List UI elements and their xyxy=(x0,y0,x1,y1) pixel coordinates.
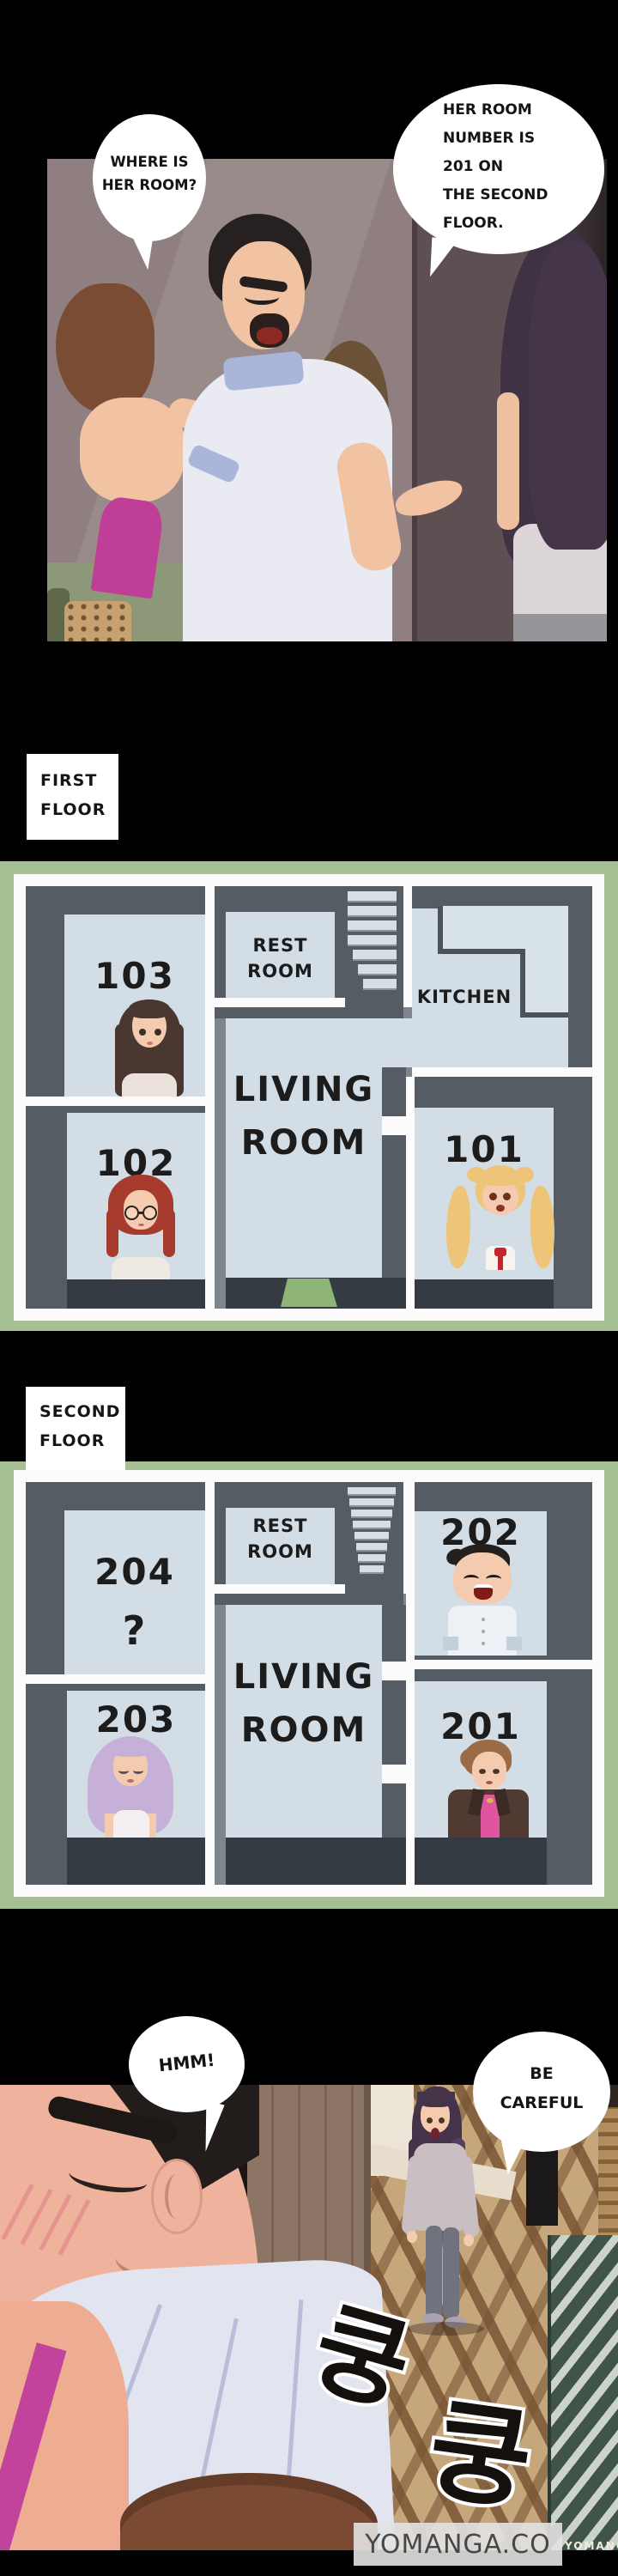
closed-happy-eye xyxy=(463,1575,479,1583)
room-203-floor xyxy=(67,1838,205,1885)
resident-103-portrait xyxy=(110,994,189,1097)
stair-tread xyxy=(348,1487,396,1496)
wall-gap xyxy=(412,1067,592,1077)
living-1f-label-line2: ROOM xyxy=(226,1123,382,1163)
eye xyxy=(503,1193,511,1200)
bangs xyxy=(417,2092,455,2107)
resident-101-portrait xyxy=(446,1163,554,1279)
bubble-line: WHERE IS xyxy=(110,154,188,170)
rest-room-1f-label: REST ROOM xyxy=(226,933,335,984)
wall-gap xyxy=(205,1482,215,1885)
mouth xyxy=(147,1042,153,1045)
closed-eye xyxy=(118,1767,129,1774)
room-number-204: 204 xyxy=(64,1551,205,1593)
bubble-line: FLOOR. xyxy=(443,215,504,232)
watermark-side-text: YOMANGA xyxy=(565,2540,618,2552)
resident-203-portrait xyxy=(81,1735,180,1838)
red-bow xyxy=(494,1248,506,1256)
door-notch xyxy=(382,1662,406,1680)
speech-bubble-careful-text: BE CAREFUL xyxy=(482,2059,602,2117)
eye xyxy=(154,1029,161,1036)
wall-gap xyxy=(215,998,345,1007)
room-number-103: 103 xyxy=(64,955,205,997)
mouth-open xyxy=(496,1205,505,1212)
closed-eye xyxy=(133,1767,143,1774)
wall-gap xyxy=(26,1674,205,1684)
resident-202-portrait xyxy=(439,1544,525,1656)
room-label-line: ROOM xyxy=(247,1541,313,1562)
speech-bubble-where-text: WHERE IS HER ROOM? xyxy=(101,150,197,197)
living-2f-label-line2: ROOM xyxy=(226,1710,382,1750)
stair-tread xyxy=(353,1521,391,1529)
camisole xyxy=(113,1810,149,1838)
living-2f-right-wall xyxy=(382,1605,406,1838)
stair-tread xyxy=(348,891,397,902)
hair-side xyxy=(106,1209,118,1257)
manga-page: WHERE IS HER ROOM? HER ROOM NUMBER IS 20… xyxy=(0,0,618,2576)
living-2f-floor xyxy=(226,1838,406,1885)
living-2f-left-wall xyxy=(215,1594,403,1605)
stair-tread xyxy=(348,920,397,932)
stair-tread xyxy=(360,1565,384,1574)
bubble-line: HER ROOM? xyxy=(102,177,197,193)
bubble-line: 201 ON xyxy=(443,158,503,175)
kitchen-counter-top xyxy=(438,906,568,954)
bangs xyxy=(129,999,170,1018)
room-201-floor xyxy=(415,1838,547,1885)
right-girl-hair-front xyxy=(528,240,607,550)
eye xyxy=(427,2117,433,2123)
room-204-question-mark: ? xyxy=(64,1607,205,1654)
eye xyxy=(489,1193,497,1200)
room-label-line: REST xyxy=(253,1516,308,1536)
stair-tread xyxy=(348,935,397,946)
first-floor-label-box: FIRST FLOOR xyxy=(27,754,118,840)
shirt xyxy=(112,1257,170,1279)
pants-leg xyxy=(426,2226,442,2318)
living-1f-right-wall xyxy=(382,1067,406,1278)
stair-tread xyxy=(348,906,397,917)
stair-tread xyxy=(351,1510,392,1518)
glasses-bridge xyxy=(138,1212,143,1214)
room-label-line: REST xyxy=(253,935,308,956)
glasses-left-lens xyxy=(124,1206,139,1220)
mouth-open xyxy=(474,1584,493,1600)
mouth xyxy=(127,1779,134,1783)
living-1f-left-wall xyxy=(215,1007,403,1018)
pants-leg xyxy=(443,2227,459,2318)
bangs xyxy=(479,1170,522,1186)
door-notch xyxy=(382,1765,406,1783)
wall-gap xyxy=(205,886,215,1309)
living-1f-label-line1: LIVING xyxy=(226,1070,382,1109)
bubble-line: CAREFUL xyxy=(500,2093,584,2112)
doorframe-line xyxy=(412,159,417,641)
couch-cushion-leopard xyxy=(64,601,131,641)
red-ribbon xyxy=(498,1256,503,1270)
living-2f-label-line1: LIVING xyxy=(226,1657,382,1697)
right-girl-arm xyxy=(497,392,519,530)
doormat xyxy=(281,1279,337,1307)
room-101-floor xyxy=(415,1279,554,1309)
second-floor-label-box: SECOND FLOOR xyxy=(26,1387,125,1470)
man-mouth-inner xyxy=(257,327,282,344)
mouth-open xyxy=(431,2128,439,2139)
right-girl-pants xyxy=(513,614,607,641)
button xyxy=(482,1630,485,1633)
wall-gap xyxy=(26,1097,205,1106)
living-1f-passage xyxy=(382,1018,412,1067)
glasses-right-lens xyxy=(142,1206,157,1220)
watermark-text: YOMANGA.CO xyxy=(354,2530,562,2560)
wall-gap xyxy=(406,1482,415,1885)
twin-tail xyxy=(530,1186,554,1268)
sleeve-cuff xyxy=(506,1637,522,1650)
kitchen-label: KITCHEN xyxy=(386,984,542,1010)
floor-label-line: FIRST xyxy=(40,771,97,790)
eye xyxy=(139,1029,146,1036)
floor-label-line: SECOND xyxy=(39,1402,120,1421)
sleeve-cuff xyxy=(443,1637,458,1650)
closed-happy-eye xyxy=(486,1575,501,1583)
stair-tread xyxy=(353,950,397,961)
wall-gap xyxy=(215,1584,345,1594)
first-floor-label: FIRST FLOOR xyxy=(40,766,118,824)
wall-gap xyxy=(406,1077,415,1309)
eye xyxy=(439,2117,445,2123)
stair-tread xyxy=(356,1543,387,1552)
button xyxy=(482,1618,485,1621)
necklace xyxy=(487,1798,494,1803)
ear-inner-line xyxy=(165,2174,189,2219)
mouth xyxy=(486,1781,493,1784)
carried-girl-hair xyxy=(56,283,154,414)
sfx-thud-2: 쿵 xyxy=(421,2360,542,2532)
wall-gap xyxy=(415,1660,592,1669)
eye xyxy=(493,1769,500,1774)
bubble-line: NUMBER IS xyxy=(443,130,535,147)
shirt xyxy=(122,1073,177,1097)
hand xyxy=(407,2231,417,2243)
resident-102-portrait xyxy=(101,1175,180,1279)
bottom-photo-panel: 쿵 쿵 xyxy=(0,2085,618,2576)
room-label-line: ROOM xyxy=(247,961,313,981)
twin-tail xyxy=(446,1186,470,1268)
stair-tread xyxy=(358,964,397,975)
eye xyxy=(479,1769,486,1774)
hair-side xyxy=(163,1209,175,1257)
room-102-floor xyxy=(67,1279,205,1309)
bubble-line: BE xyxy=(530,2064,553,2083)
bubble-line: THE SECOND xyxy=(443,186,548,204)
resident-201-portrait xyxy=(443,1740,534,1838)
rest-room-2f-label: REST ROOM xyxy=(226,1513,335,1564)
stair-tread xyxy=(349,1498,394,1507)
bubble-line: HER ROOM xyxy=(443,101,532,118)
stair-tread xyxy=(358,1554,385,1563)
door-notch xyxy=(382,1116,406,1135)
man-closed-eye xyxy=(245,289,279,305)
button xyxy=(482,1642,485,1645)
second-floor-label: SECOND FLOOR xyxy=(39,1397,124,1455)
stair-tread xyxy=(354,1532,389,1540)
bangs xyxy=(108,1738,153,1757)
floor-label-line: FLOOR xyxy=(40,800,106,819)
speech-bubble-room201-text: HER ROOM NUMBER IS 201 ON THE SECOND FLO… xyxy=(443,96,597,238)
floor-label-line: FLOOR xyxy=(39,1431,105,1450)
mouth xyxy=(138,1224,144,1226)
hand xyxy=(463,2234,474,2246)
